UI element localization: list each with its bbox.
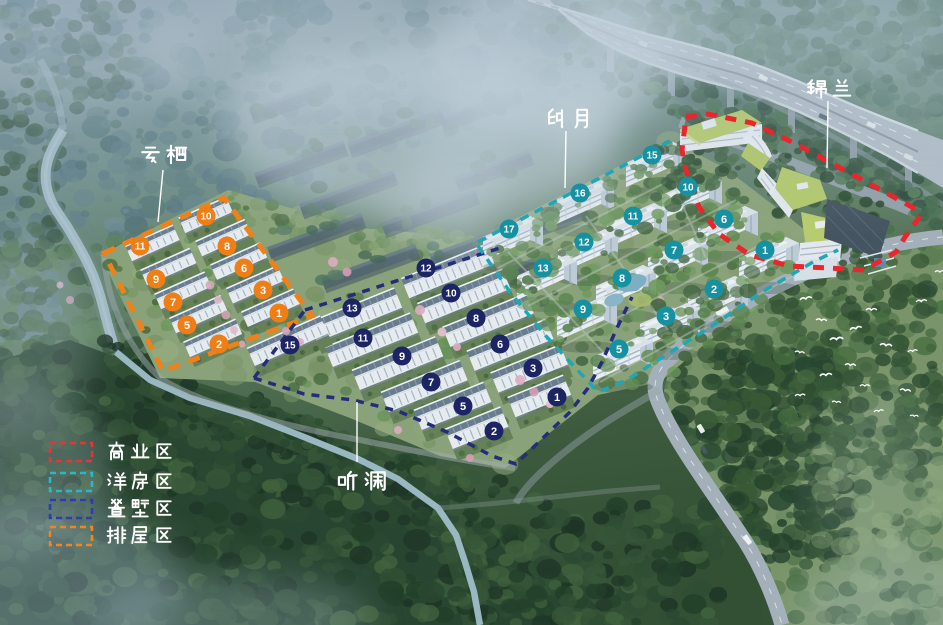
svg-text:1: 1	[762, 245, 768, 257]
svg-text:2: 2	[216, 339, 222, 351]
svg-text:6: 6	[497, 339, 503, 351]
svg-text:13: 13	[537, 264, 549, 275]
svg-text:8: 8	[473, 313, 479, 325]
svg-text:10: 10	[445, 289, 457, 300]
svg-text:13: 13	[346, 304, 358, 315]
svg-text:7: 7	[671, 245, 677, 257]
svg-text:15: 15	[284, 341, 296, 352]
svg-text:8: 8	[224, 241, 230, 253]
svg-text:7: 7	[170, 297, 176, 309]
svg-text:2: 2	[491, 426, 497, 438]
svg-text:11: 11	[135, 242, 146, 253]
svg-text:9: 9	[399, 351, 405, 363]
svg-text:5: 5	[616, 344, 622, 356]
svg-text:9: 9	[153, 274, 159, 286]
svg-text:10: 10	[682, 183, 694, 194]
svg-text:5: 5	[460, 401, 466, 413]
svg-text:3: 3	[260, 285, 266, 297]
svg-text:8: 8	[619, 273, 625, 285]
svg-text:2: 2	[711, 284, 717, 296]
svg-text:12: 12	[578, 238, 590, 249]
svg-text:16: 16	[574, 189, 586, 200]
svg-text:15: 15	[646, 151, 658, 162]
svg-text:9: 9	[580, 304, 586, 316]
svg-text:3: 3	[530, 363, 536, 375]
svg-text:1: 1	[554, 392, 560, 404]
svg-text:7: 7	[428, 377, 434, 389]
svg-text:6: 6	[241, 263, 247, 275]
svg-text:3: 3	[663, 311, 669, 323]
svg-text:1: 1	[276, 308, 282, 320]
svg-text:17: 17	[503, 225, 515, 236]
svg-text:11: 11	[628, 212, 639, 223]
svg-text:11: 11	[358, 334, 369, 345]
svg-text:6: 6	[721, 214, 727, 226]
svg-text:12: 12	[420, 264, 432, 275]
svg-text:5: 5	[184, 320, 190, 332]
svg-text:10: 10	[200, 212, 212, 223]
